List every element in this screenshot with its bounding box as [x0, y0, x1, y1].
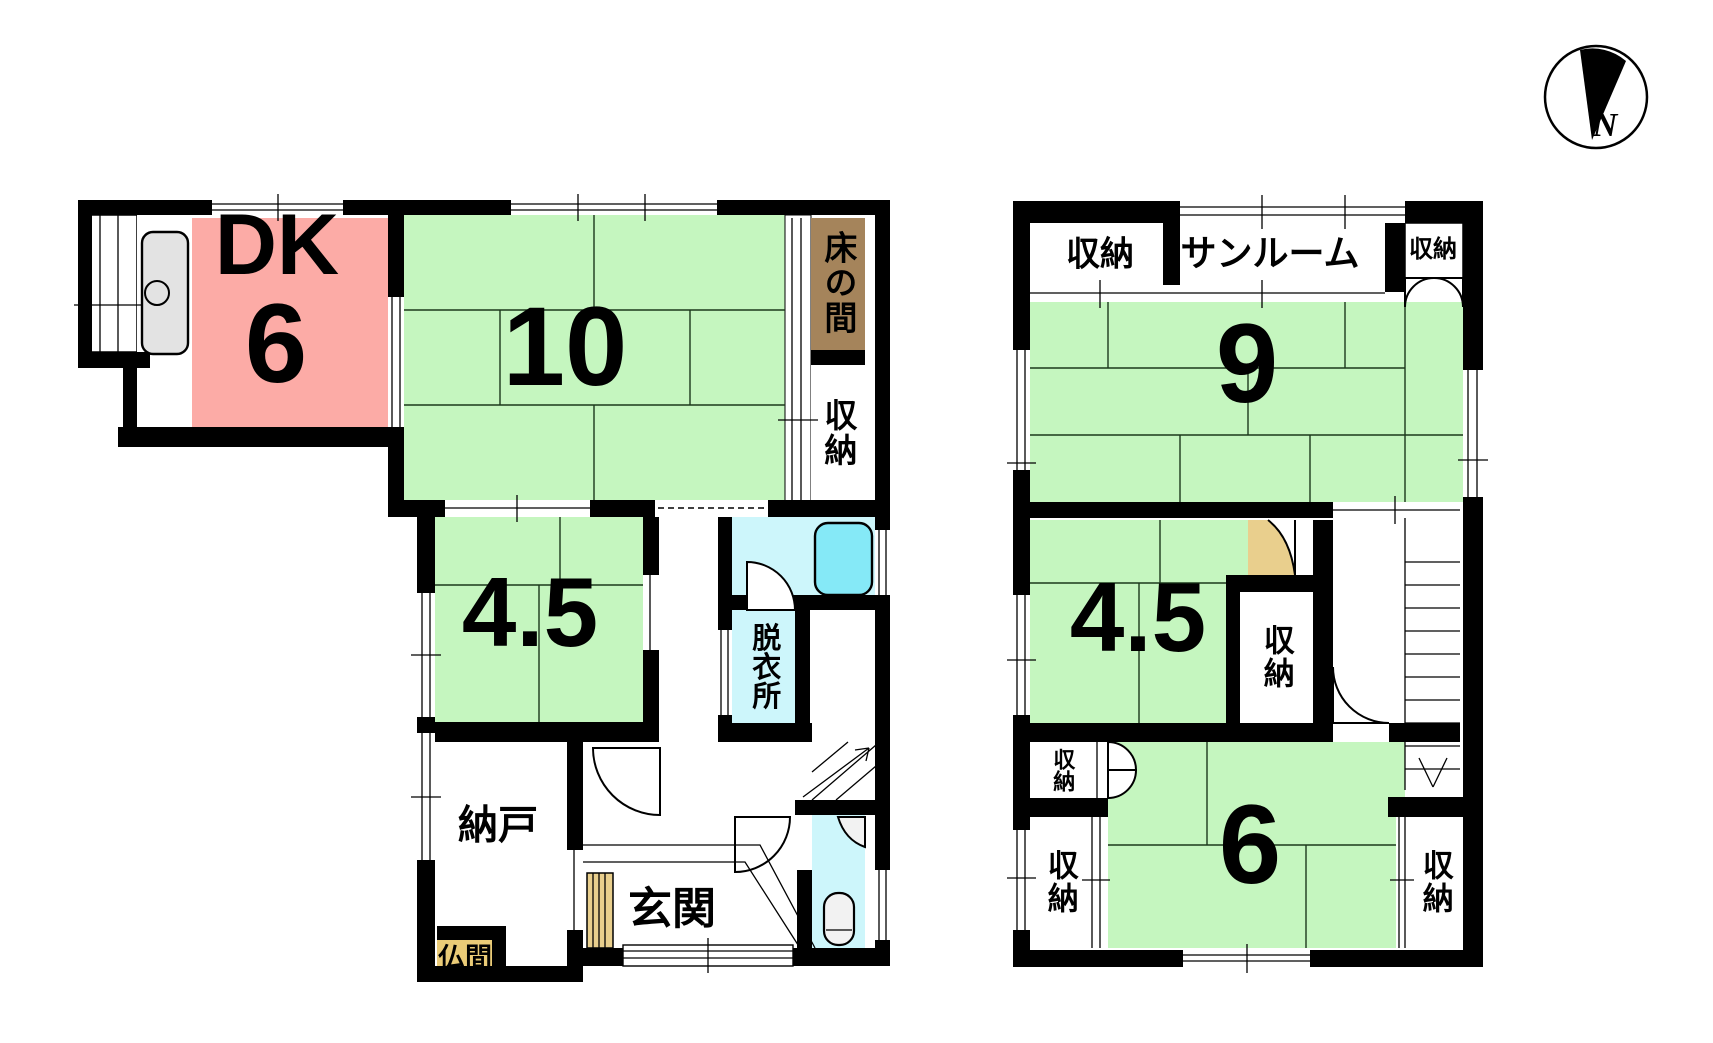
- shuno2f-mid-label: 収納: [1260, 624, 1292, 690]
- dk-10-divider: [388, 215, 404, 427]
- washitsu45-size: 4.5: [462, 563, 598, 663]
- shuno2f-br-label: 収納: [1419, 849, 1451, 915]
- kitchen-sink: [142, 232, 188, 354]
- dk-name-label: DK: [215, 202, 339, 290]
- tokonoma-label: 床の間: [821, 231, 855, 336]
- compass-north-label: N: [1593, 107, 1618, 145]
- nando-label: 納戸: [458, 806, 538, 847]
- washitsu10-size: 10: [503, 290, 628, 404]
- stairs-1f: [803, 742, 876, 800]
- genkan-step: [587, 873, 613, 948]
- floor-plan-canvas: DK 6 10 床の間 収納 4.5 脱衣所 納戸 仏間 玄関 収納 サンルーム…: [0, 0, 1713, 1043]
- floor-plan-drawing: [0, 0, 1713, 1043]
- hall2f-door-arc: [1333, 667, 1389, 723]
- washitsu45-2f-size: 4.5: [1070, 568, 1206, 668]
- sunroom-label: サンルーム: [1181, 236, 1360, 273]
- datsuijo-label: 脱衣所: [748, 623, 778, 710]
- front-entrance-door: [623, 938, 793, 973]
- shuno2f-bl-label: 収納: [1044, 849, 1076, 915]
- washitsu9-size: 9: [1216, 307, 1278, 421]
- shuno2f-bls-label: 収納: [1051, 748, 1073, 792]
- washitsu6-size: 6: [1219, 788, 1281, 902]
- stairs-2f: [1405, 518, 1460, 790]
- bathtub: [815, 523, 872, 595]
- shuno2f-tl-label: 収納: [1066, 238, 1134, 273]
- genkan-label: 玄関: [628, 888, 716, 933]
- hall-door-arc: [593, 748, 660, 815]
- toilet-bowl: [824, 893, 854, 945]
- shuno2f-tr-label: 収納: [1409, 238, 1457, 262]
- butsuma-label: 仏間: [438, 945, 492, 973]
- shuno1f-label: 収納: [821, 398, 855, 468]
- dk-size-label: 6: [245, 287, 307, 401]
- fusuma-strip: [785, 215, 811, 502]
